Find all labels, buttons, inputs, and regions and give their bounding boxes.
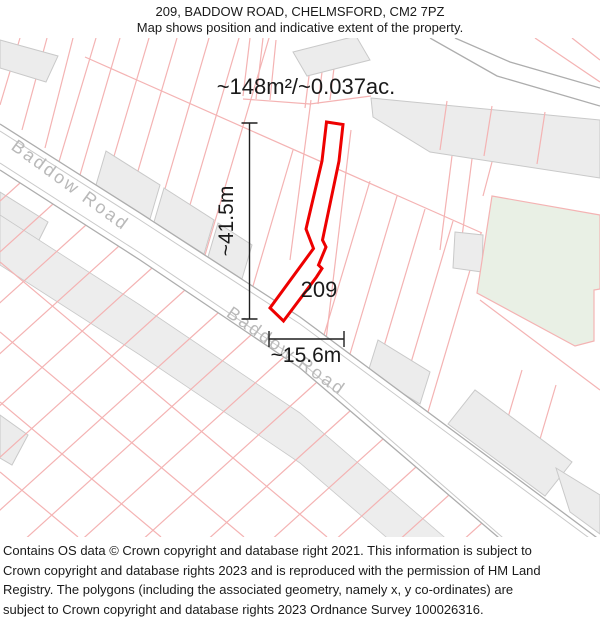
map-canvas: Baddow Road Baddow Road ~41.5m ~15.6m ~1… — [0, 38, 600, 537]
map-title: 209, BADDOW ROAD, CHELMSFORD, CM2 7PZ — [0, 4, 600, 20]
secondary-road — [430, 38, 600, 106]
property-number-label: 209 — [301, 277, 338, 302]
map-header: 209, BADDOW ROAD, CHELMSFORD, CM2 7PZ Ma… — [0, 0, 600, 38]
map-subtitle: Map shows position and indicative extent… — [0, 20, 600, 36]
green-space — [477, 196, 600, 346]
copyright-notice: Contains OS data © Crown copyright and d… — [3, 541, 545, 619]
area-label: ~148m²/~0.037ac. — [217, 74, 396, 99]
height-dimension-label: ~41.5m — [215, 186, 238, 257]
width-dimension-label: ~15.6m — [271, 344, 342, 367]
land-registry-map: Baddow Road Baddow Road ~41.5m ~15.6m ~1… — [0, 38, 600, 537]
